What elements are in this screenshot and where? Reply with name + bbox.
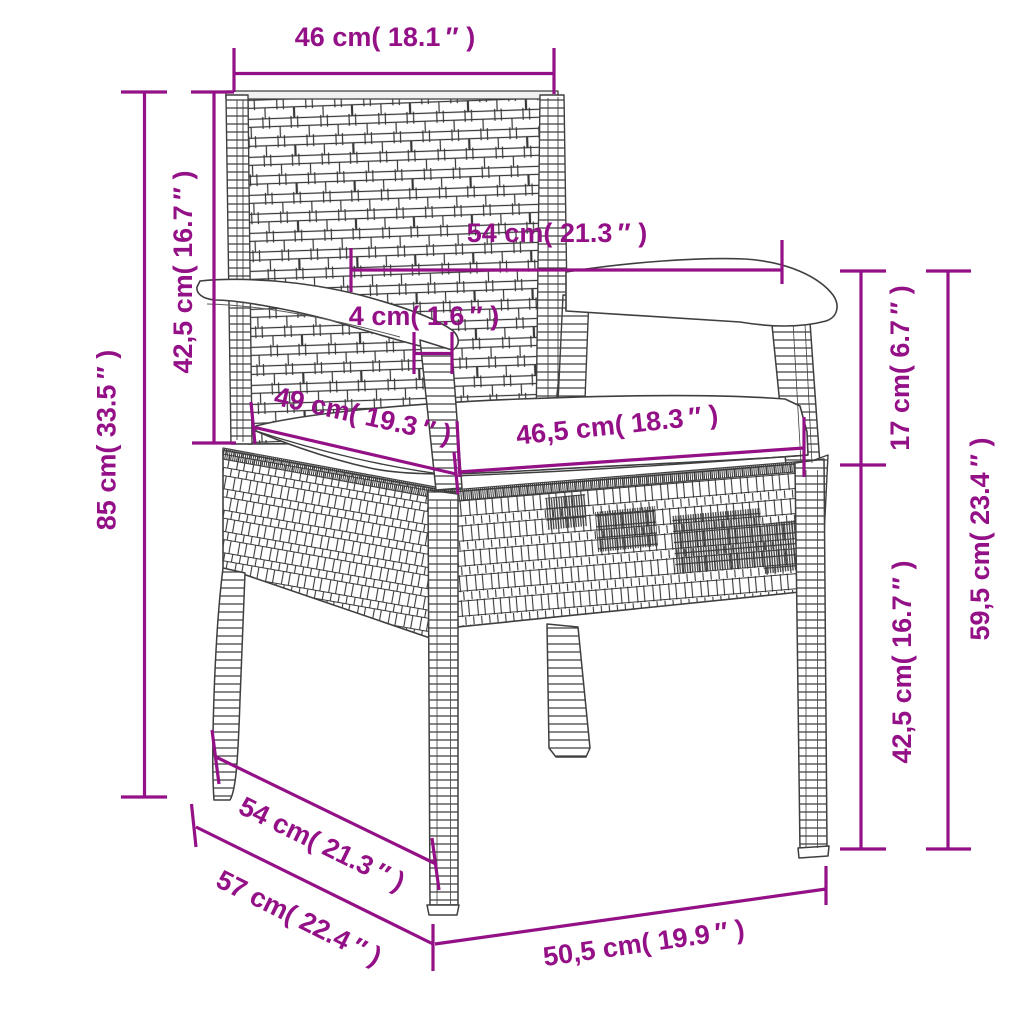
svg-text:50,5 cm( 19.9 ″ ): 50,5 cm( 19.9 ″ ) [541,914,746,972]
svg-text:4 cm( 1.6 ″ ): 4 cm( 1.6 ″ ) [349,301,499,331]
svg-text:54 cm( 21.3 ″ ): 54 cm( 21.3 ″ ) [467,218,647,248]
svg-text:42,5 cm( 16.7 ″ ): 42,5 cm( 16.7 ″ ) [168,171,198,374]
svg-text:59,5 cm( 23.4 ″ ): 59,5 cm( 23.4 ″ ) [965,438,995,641]
svg-text:42,5 cm( 16.7 ″ ): 42,5 cm( 16.7 ″ ) [887,561,917,764]
svg-text:17 cm( 6.7 ″ ): 17 cm( 6.7 ″ ) [885,285,915,450]
svg-text:85 cm( 33.5 ″ ): 85 cm( 33.5 ″ ) [92,350,122,530]
svg-text:57 cm( 22.4 ″ ): 57 cm( 22.4 ″ ) [212,864,387,971]
svg-text:46 cm( 18.1 ″ ): 46 cm( 18.1 ″ ) [295,22,475,52]
